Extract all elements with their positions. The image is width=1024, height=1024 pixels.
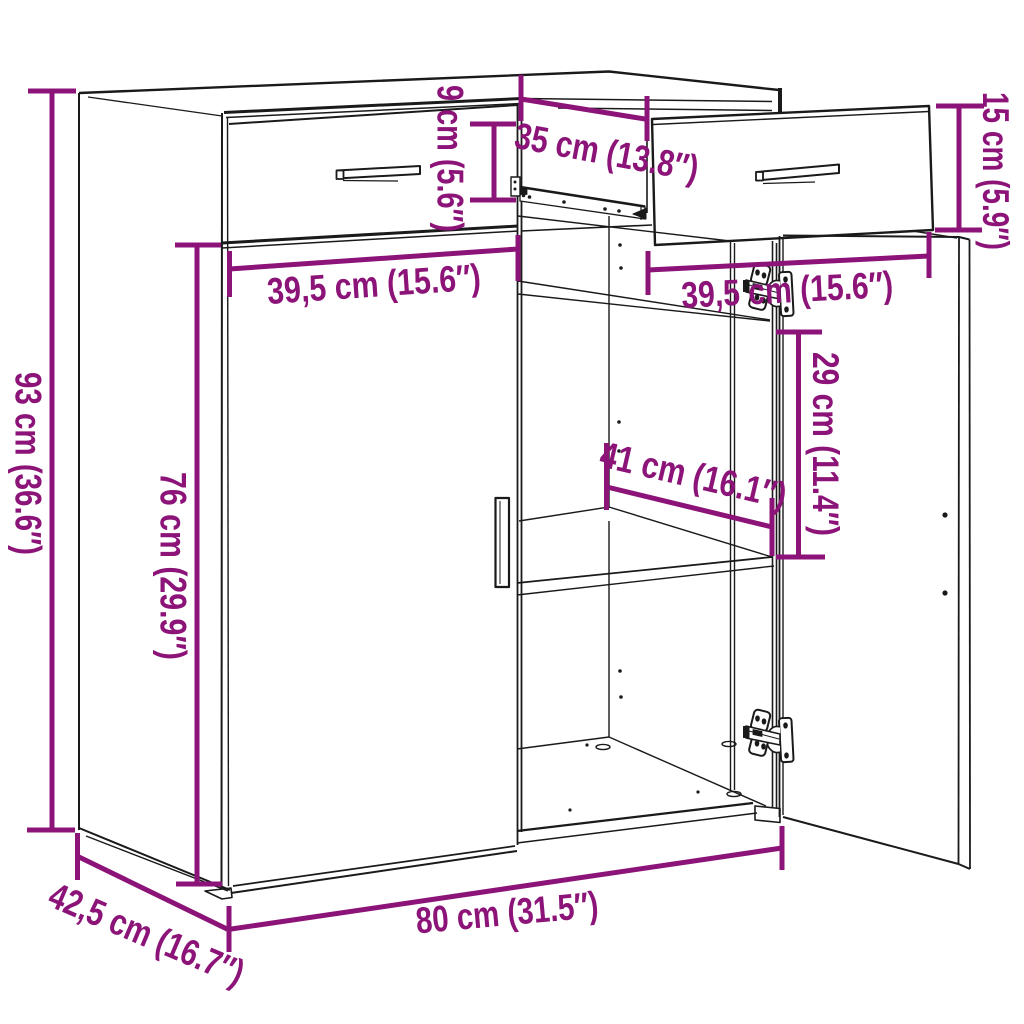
svg-text:29 cm (11.4″): 29 cm (11.4″) [805,352,846,536]
svg-text:76 cm (29.9″): 76 cm (29.9″) [153,472,194,660]
svg-text:9 cm (5.6″): 9 cm (5.6″) [430,85,471,232]
svg-text:15 cm (5.9″): 15 cm (5.9″) [975,92,1016,250]
svg-text:93 cm (36.6″): 93 cm (36.6″) [8,372,49,555]
